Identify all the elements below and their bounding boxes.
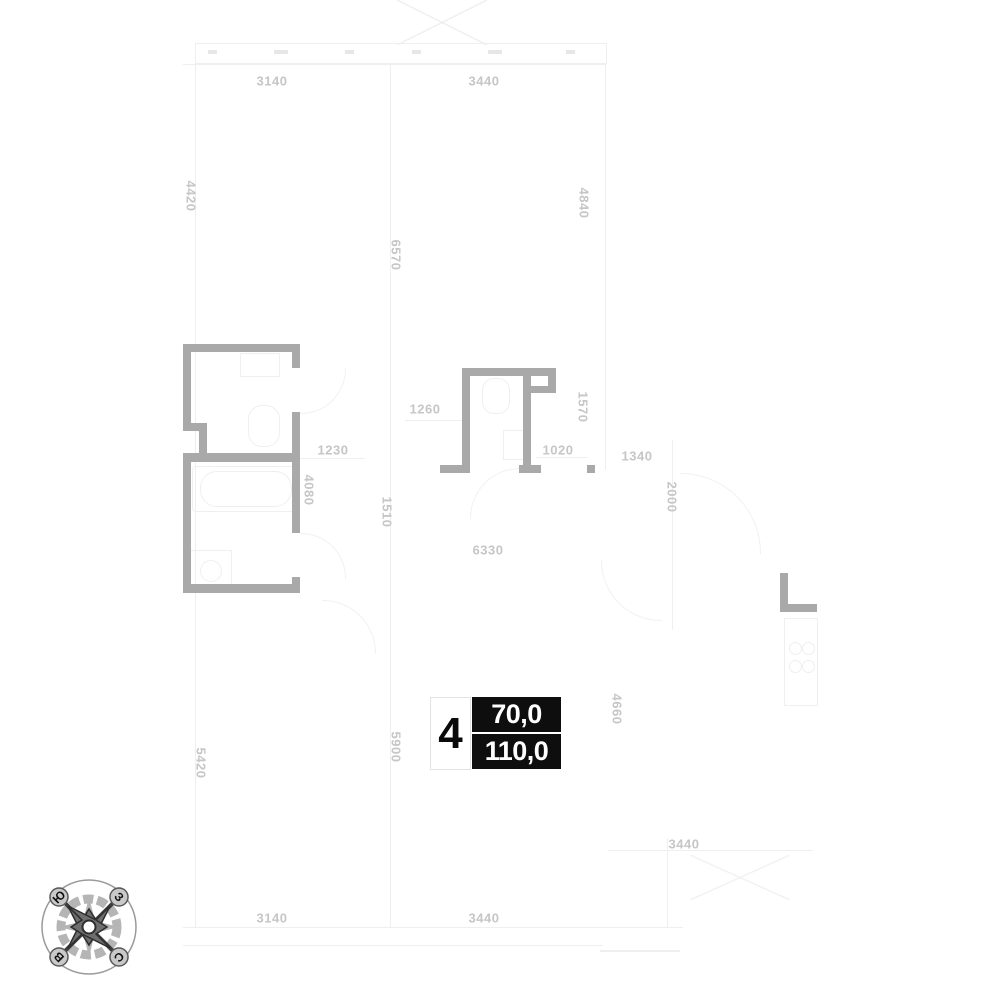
wall bbox=[199, 423, 207, 455]
wall bbox=[183, 462, 191, 593]
door-arc bbox=[680, 473, 761, 554]
wall bbox=[292, 344, 300, 368]
dimension-label: 1020 bbox=[543, 443, 574, 458]
wall bbox=[531, 386, 556, 393]
dimension-label: 6330 bbox=[473, 543, 504, 558]
dimension-label: 3440 bbox=[669, 837, 700, 852]
dimension-line bbox=[405, 420, 462, 421]
wall bbox=[183, 453, 300, 462]
dimension-label: 4420 bbox=[184, 181, 199, 212]
vanity-fixture bbox=[240, 353, 280, 377]
wall bbox=[183, 584, 300, 593]
wall bbox=[462, 368, 470, 465]
dimension-label: 1510 bbox=[380, 497, 395, 528]
wall bbox=[440, 465, 470, 473]
wall bbox=[519, 465, 541, 473]
window-glazing-icon bbox=[397, 0, 487, 45]
facade-tick bbox=[488, 50, 502, 54]
dimension-label: 5420 bbox=[194, 748, 209, 779]
witness-line bbox=[672, 440, 673, 630]
compass-letter-south: Ю bbox=[50, 888, 69, 907]
facade-tick bbox=[208, 50, 217, 54]
compass-letter-north: С bbox=[110, 948, 128, 966]
dimension-line bbox=[183, 927, 683, 928]
dimension-label: 2000 bbox=[665, 482, 680, 513]
dimension-label: 3440 bbox=[469, 911, 500, 926]
dimension-label: 3140 bbox=[257, 911, 288, 926]
wall bbox=[462, 368, 556, 376]
wall bbox=[523, 376, 531, 465]
compass-rose-icon: Ю З В С bbox=[38, 876, 140, 978]
facade-tick bbox=[345, 50, 354, 54]
wall bbox=[292, 462, 300, 533]
witness-line bbox=[390, 64, 391, 927]
dimension-label: 4660 bbox=[610, 694, 625, 725]
area-living: 70,0 bbox=[472, 697, 561, 732]
dimension-label: 1570 bbox=[576, 392, 591, 423]
dimension-label: 5900 bbox=[389, 732, 404, 763]
dimension-line bbox=[183, 64, 605, 65]
balcony-edge bbox=[183, 945, 603, 946]
apartment-badge: 4 70,0 110,0 bbox=[430, 697, 561, 770]
witness-line bbox=[667, 838, 668, 928]
wall bbox=[183, 344, 300, 352]
dimension-label: 3440 bbox=[469, 74, 500, 89]
dimension-label: 6570 bbox=[389, 240, 404, 271]
facade-tick bbox=[274, 50, 288, 54]
kitchen-sink-bowl bbox=[802, 642, 815, 655]
balcony-edge bbox=[600, 950, 680, 952]
kitchen-sink-bowl bbox=[789, 642, 802, 655]
facade-band bbox=[195, 43, 607, 64]
dimension-label: 1340 bbox=[622, 449, 653, 464]
wall bbox=[183, 344, 191, 431]
toilet-fixture bbox=[482, 378, 510, 414]
apartment-number: 4 bbox=[430, 697, 471, 770]
facade-tick bbox=[566, 50, 575, 54]
compass-letter-west: З bbox=[110, 888, 128, 906]
door-arc bbox=[300, 533, 346, 579]
door-arc bbox=[470, 468, 521, 519]
wall bbox=[587, 465, 595, 473]
door-arc bbox=[322, 600, 376, 654]
dimension-label: 4080 bbox=[302, 475, 317, 506]
door-arc bbox=[300, 368, 346, 414]
witness-line bbox=[605, 64, 606, 470]
floor-plan-canvas: 3140344044204840657012601570123010201340… bbox=[0, 0, 1000, 1000]
toilet-fixture bbox=[248, 405, 280, 447]
washer-drum bbox=[200, 560, 222, 582]
stove-burner bbox=[789, 660, 802, 673]
stove-burner bbox=[802, 660, 815, 673]
dimension-line bbox=[608, 850, 813, 851]
compass-letter-east: В bbox=[50, 948, 68, 966]
facade-tick bbox=[412, 50, 421, 54]
dimension-label: 3140 bbox=[257, 74, 288, 89]
wall bbox=[292, 577, 300, 593]
door-arc bbox=[601, 560, 662, 621]
dimension-label: 1260 bbox=[410, 402, 441, 417]
dimension-label: 1230 bbox=[318, 443, 349, 458]
bathtub-basin bbox=[200, 471, 292, 507]
apartment-areas: 70,0 110,0 bbox=[472, 697, 561, 770]
wall bbox=[292, 412, 300, 453]
window-glazing-icon bbox=[690, 855, 790, 900]
wall bbox=[780, 604, 817, 612]
dimension-label: 4840 bbox=[577, 188, 592, 219]
area-total: 110,0 bbox=[472, 734, 561, 769]
dimension-line bbox=[300, 458, 365, 459]
